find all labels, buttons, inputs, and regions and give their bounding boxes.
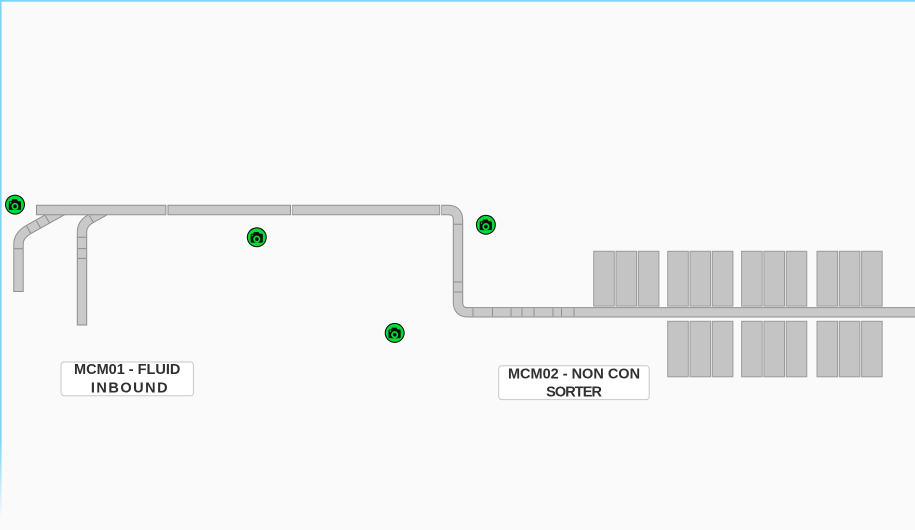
svg-text:MCM01 - FLUID: MCM01 - FLUID xyxy=(74,362,180,378)
svg-text:SORTER: SORTER xyxy=(546,385,602,401)
svg-text:INBOUND: INBOUND xyxy=(91,381,169,397)
svg-text:MCM02 - NON CON: MCM02 - NON CON xyxy=(508,367,640,383)
